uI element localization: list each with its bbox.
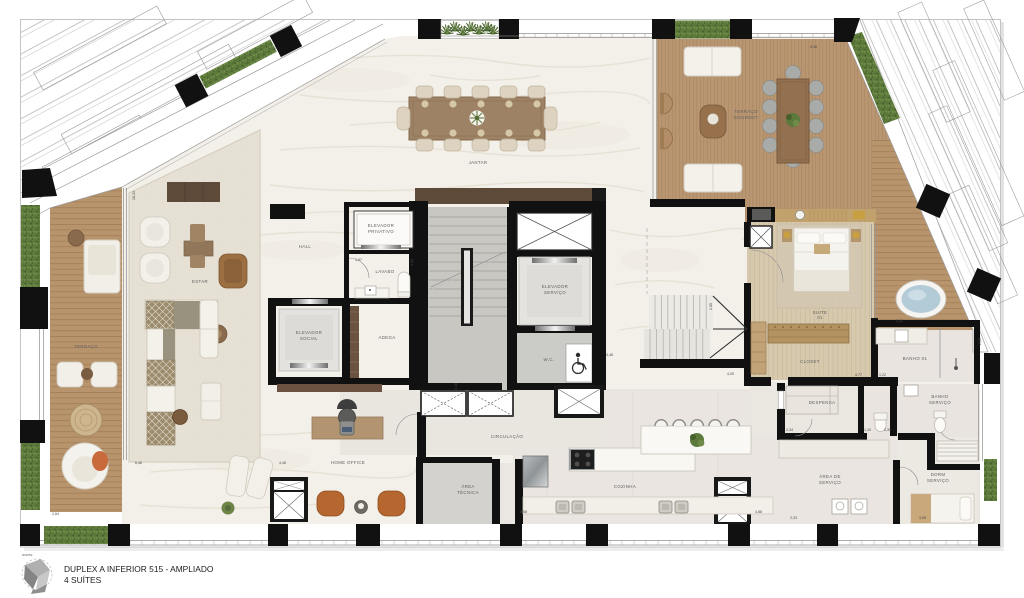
svg-text:1,10: 1,10 (864, 428, 871, 432)
svg-text:LAVABO: LAVABO (375, 269, 394, 274)
svg-text:2,34: 2,34 (786, 428, 793, 432)
svg-text:ADEGA: ADEGA (378, 335, 395, 340)
svg-text:4,00: 4,00 (727, 372, 734, 376)
svg-text:SERVIÇO: SERVIÇO (544, 290, 566, 295)
svg-text:ÁREA: ÁREA (461, 484, 474, 489)
svg-text:ÁREA DE: ÁREA DE (819, 474, 840, 479)
svg-text:HALL: HALL (299, 244, 312, 249)
svg-text:JANTAR: JANTAR (469, 160, 488, 165)
svg-text:GOURMET: GOURMET (734, 115, 759, 120)
svg-text:BANHO 01: BANHO 01 (903, 356, 928, 361)
svg-text:TÉCNICA: TÉCNICA (457, 490, 479, 495)
svg-text:5,36: 5,36 (810, 45, 817, 49)
svg-text:4 SUÍTES: 4 SUÍTES (64, 575, 102, 585)
svg-text:SERVIÇO: SERVIÇO (819, 480, 841, 485)
svg-text:6,46: 6,46 (135, 461, 142, 465)
svg-text:3,48: 3,48 (606, 353, 613, 357)
svg-text:8,08: 8,08 (520, 510, 527, 514)
svg-text:DORM: DORM (931, 472, 946, 477)
svg-text:BANHO: BANHO (931, 394, 949, 399)
svg-text:DESPENSA: DESPENSA (809, 400, 836, 405)
svg-text:SERVIÇO: SERVIÇO (929, 400, 951, 405)
svg-text:2,85: 2,85 (709, 303, 713, 310)
svg-text:ELEVADOR: ELEVADOR (296, 330, 322, 335)
svg-text:01: 01 (817, 315, 823, 320)
svg-text:ELEVADOR: ELEVADOR (542, 284, 568, 289)
svg-text:CLOSET: CLOSET (800, 359, 820, 364)
svg-text:4,46: 4,46 (279, 461, 286, 465)
svg-text:1,97: 1,97 (355, 258, 362, 262)
svg-text:ELEVADOR: ELEVADOR (368, 223, 394, 228)
svg-text:1,34: 1,34 (410, 259, 414, 266)
svg-text:TERRAÇO: TERRAÇO (734, 109, 758, 114)
svg-text:2,33: 2,33 (790, 516, 797, 520)
svg-text:4,77: 4,77 (855, 373, 862, 377)
svg-text:TERRAÇO: TERRAÇO (74, 344, 98, 349)
svg-text:W.C.: W.C. (544, 357, 555, 362)
svg-text:PRIVATIVO: PRIVATIVO (368, 229, 394, 234)
svg-text:COZINHA: COZINHA (614, 484, 636, 489)
svg-text:CIRCULAÇÃO: CIRCULAÇÃO (491, 434, 524, 439)
svg-text:NORTE: NORTE (22, 553, 32, 557)
svg-text:1,22: 1,22 (879, 373, 886, 377)
svg-text:2,35: 2,35 (884, 428, 891, 432)
svg-text:2,64: 2,64 (52, 512, 59, 516)
svg-text:4,46: 4,46 (454, 383, 458, 390)
svg-text:DUPLEX A INFERIOR 515 - AMPLIA: DUPLEX A INFERIOR 515 - AMPLIADO (64, 564, 214, 574)
svg-text:ESTAR: ESTAR (192, 279, 208, 284)
svg-text:SOCIAL: SOCIAL (300, 336, 318, 341)
svg-text:2,86: 2,86 (978, 338, 982, 345)
svg-text:18,21: 18,21 (132, 191, 136, 200)
svg-text:4,88: 4,88 (755, 510, 762, 514)
svg-text:HOME OFFICE: HOME OFFICE (331, 460, 365, 465)
svg-text:SERVIÇO: SERVIÇO (927, 478, 949, 483)
svg-text:2,22: 2,22 (896, 319, 903, 323)
svg-text:3,05: 3,05 (919, 516, 926, 520)
